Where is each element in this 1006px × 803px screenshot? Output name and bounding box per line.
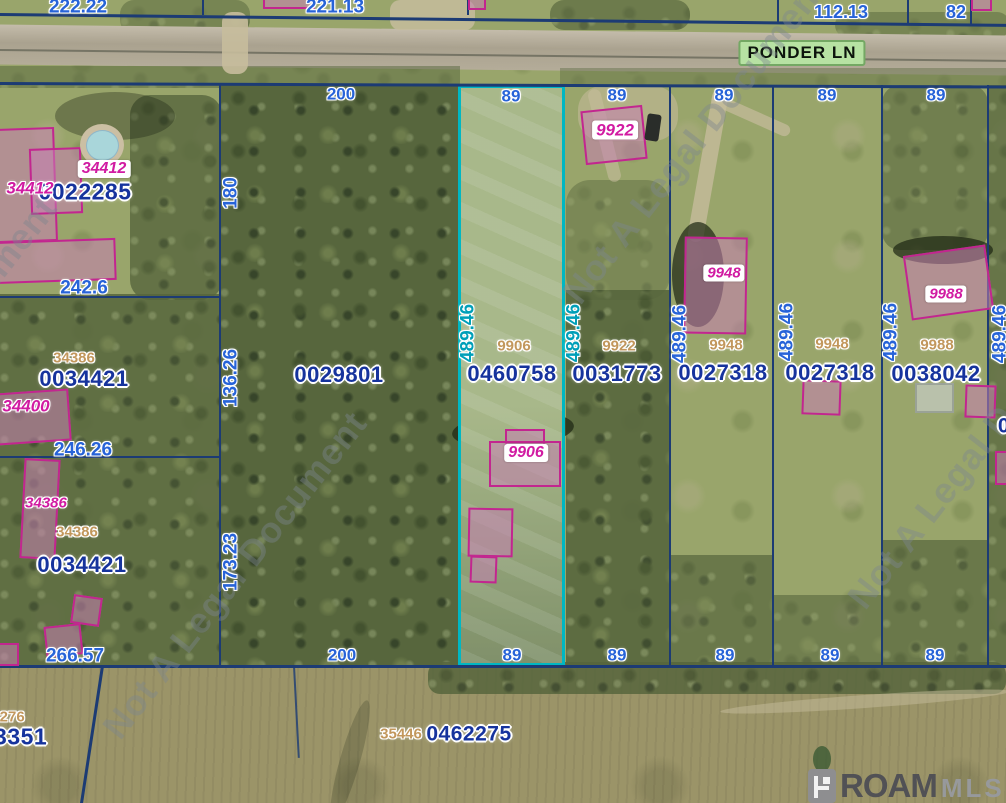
dim-89-bot-5-label: 89 [926, 647, 945, 664]
mag-34412-a-label: 34412 [78, 160, 131, 178]
dim-221-13-label: 221.13 [306, 0, 364, 17]
dim-222-22-label: 222.22 [49, 0, 107, 17]
dim-89-top-3-label: 89 [715, 87, 734, 104]
house-sliver-top-b [468, 0, 486, 10]
roam-logo-text: ROAM [840, 769, 937, 802]
house-9948-a [683, 236, 748, 334]
dim-200-top-label: 200 [327, 86, 355, 103]
pid-0038042-label: 0038042 [891, 363, 980, 385]
dim-89-top-5-label: 89 [927, 87, 946, 104]
dim-112-13-label: 112.13 [814, 3, 868, 21]
aerial-parcel-map[interactable]: PONDER LN Not A Legal DocumentNot A Lega… [0, 0, 1006, 803]
dim-489-46-6-label: 489.46 [991, 305, 1006, 363]
dim-89-bot-3-label: 89 [716, 647, 735, 664]
dim-242-6-label: 242.6 [60, 279, 108, 298]
terrain-top-trees-b [550, 0, 690, 30]
pid-0034421-b-label: 0034421 [37, 554, 126, 576]
tan-9988-label: 9988 [920, 338, 953, 353]
terrain-right-edge-trees [988, 85, 1006, 666]
shed-34421-c [0, 643, 19, 666]
lot-line-908 [907, 0, 909, 25]
mag-9948-label: 9948 [703, 265, 744, 282]
dim-173-23-label: 173.23 [222, 533, 241, 591]
dim-489-46-5-label: 489.46 [882, 303, 901, 361]
tan-34386-b-label: 34386 [56, 525, 98, 540]
mag-34386-label: 34386 [25, 496, 67, 511]
shed-34421-a [70, 594, 103, 627]
dim-89-top-2-label: 89 [608, 87, 627, 104]
tan-9948-b-label: 9948 [815, 337, 848, 352]
dim-89-bot-2-label: 89 [608, 647, 627, 664]
pid-0031773-label: 0031773 [572, 363, 661, 385]
roam-mls-logo: ROAM MLS [808, 769, 1005, 803]
dim-200-bottom-label: 200 [328, 647, 356, 664]
pid-0027318-b-label: 0027318 [785, 362, 874, 384]
dim-136-26-label: 136.26 [222, 349, 241, 407]
dim-489-46-3-label: 489.46 [671, 305, 690, 363]
mls-logo-text: MLS [941, 775, 1005, 801]
parcel-line-242 [0, 296, 221, 298]
dim-89-top-1-label: 89 [502, 88, 521, 105]
lot-line-773 [772, 85, 774, 667]
pid-0034421-a-label: 0034421 [39, 368, 128, 390]
dim-266-57-label: 266.57 [46, 647, 104, 666]
roam-logo-icon [808, 769, 836, 803]
dim-489-46-2-label: 489.46 [565, 304, 584, 362]
mag-34400-label: 34400 [2, 398, 49, 415]
tan-9906-label: 9906 [497, 339, 530, 354]
pid-0029801-label: 0029801 [294, 364, 383, 386]
mag-9906-label: 9906 [504, 444, 548, 462]
concrete-pad-top [390, 0, 475, 30]
shed-9906-a [468, 508, 514, 558]
mag-9988-label: 9988 [925, 286, 966, 303]
tan-34386-a-label: 34386 [53, 351, 95, 366]
lot-line-988 [987, 85, 989, 667]
pid-0027318-a-label: 0027318 [678, 362, 767, 384]
swimming-pool [86, 130, 119, 161]
tan-34276-cut-label: 4276 [0, 710, 25, 725]
dim-89-top-4-label: 89 [818, 87, 837, 104]
tan-35446-label: 35446 [380, 727, 422, 742]
tan-9922-label: 9922 [602, 339, 635, 354]
pid-83351-label: 83351 [0, 726, 47, 749]
dim-489-46-1-label: 489.46 [459, 304, 478, 362]
house-9988 [903, 245, 994, 321]
mag-9922-label: 9922 [592, 121, 638, 140]
shed-9906-b [470, 556, 498, 584]
lot-line-203 [202, 0, 204, 15]
terrain-38042-top-trees [882, 85, 988, 250]
dim-89-bot-4-label: 89 [821, 647, 840, 664]
trampoline [915, 383, 954, 413]
driveway-top-left [222, 12, 248, 74]
tan-9948-a-label: 9948 [709, 338, 742, 353]
dim-82-label: 82 [946, 3, 966, 21]
dim-89-bot-1-label: 89 [503, 647, 522, 664]
dim-246-26-label: 246.26 [54, 441, 112, 460]
pid-0462275-label: 0462275 [426, 724, 511, 745]
dim-489-46-4-label: 489.46 [778, 303, 797, 361]
pid-right-cut-label: 0 [998, 416, 1006, 437]
mag-34412-b-label: 34412 [6, 180, 53, 197]
house-sliver-top-c [971, 0, 992, 11]
pid-0460758-label: 0460758 [467, 363, 556, 385]
dim-180-label: 180 [222, 177, 241, 209]
